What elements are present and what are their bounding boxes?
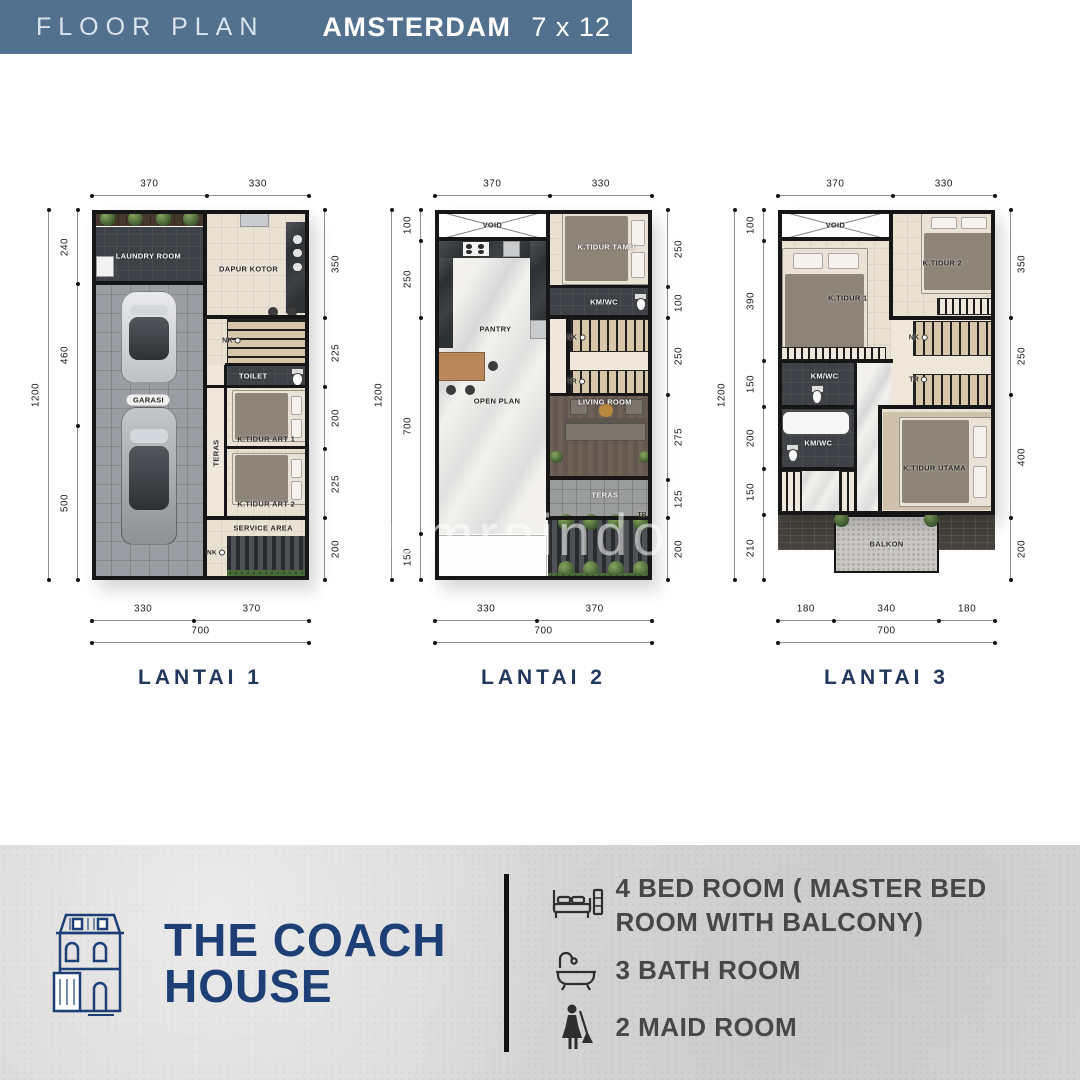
dimension-tick bbox=[419, 578, 423, 582]
dimension-tick bbox=[666, 208, 670, 212]
dimension-label: 700 bbox=[403, 417, 414, 435]
room-label-k-tidur-tamu: K.TIDUR TAMU bbox=[578, 243, 635, 252]
dimension-label: 350 bbox=[1017, 255, 1028, 273]
dimension-tick bbox=[76, 208, 80, 212]
dimension-tick bbox=[390, 578, 394, 582]
room-label-living-room: LIVING ROOM bbox=[578, 397, 632, 406]
footer-divider bbox=[504, 874, 509, 1052]
dimension-tick bbox=[832, 619, 836, 623]
dimension-tick bbox=[666, 316, 670, 320]
room-label-tr: TR bbox=[637, 511, 646, 518]
feature-maidrooms: 2 MAID ROOM bbox=[537, 1003, 1075, 1053]
maid-icon bbox=[537, 1003, 615, 1053]
dimension-label: 330 bbox=[935, 179, 953, 190]
dimension-tick bbox=[548, 194, 552, 198]
dimension-label: 100 bbox=[674, 293, 685, 311]
dimension-line bbox=[778, 195, 995, 196]
dimension-label: 250 bbox=[403, 270, 414, 288]
dimension-line bbox=[48, 210, 49, 580]
dimension-tick bbox=[937, 619, 941, 623]
dimension-tick bbox=[762, 467, 766, 471]
dimension-tick bbox=[650, 641, 654, 645]
dimension-tick bbox=[666, 516, 670, 520]
dimension-tick bbox=[762, 239, 766, 243]
brand-line-2: HOUSE bbox=[164, 963, 446, 1009]
features-list: 4 BED ROOM ( MASTER BED ROOM WITH BALCON… bbox=[537, 872, 1075, 1054]
floor-plan-title: FLOOR PLAN bbox=[36, 13, 264, 42]
room-label-km-wc: KM/WC bbox=[804, 439, 832, 448]
dimension-tick bbox=[76, 282, 80, 286]
dimension-label: 700 bbox=[191, 626, 209, 637]
dimension-label: 150 bbox=[746, 375, 757, 393]
feature-maidrooms-text: 2 MAID ROOM bbox=[615, 1011, 797, 1045]
room-label-teras: TERAS bbox=[212, 439, 221, 466]
dimension-label: 150 bbox=[746, 483, 757, 501]
dimension-label: 100 bbox=[746, 216, 757, 234]
dimension-label: 100 bbox=[403, 216, 414, 234]
dimension-label: 225 bbox=[331, 344, 342, 362]
dimension-tick bbox=[323, 385, 327, 389]
dimension-label: 1200 bbox=[374, 383, 385, 407]
stair-direction-marker bbox=[921, 377, 927, 383]
dimension-line bbox=[391, 210, 392, 580]
dimension-tick bbox=[76, 424, 80, 428]
dimension-label: 370 bbox=[243, 604, 261, 615]
room-label-nk: NK bbox=[567, 334, 586, 341]
dimension-tick bbox=[733, 578, 737, 582]
dimension-line bbox=[420, 210, 421, 580]
dimension-tick bbox=[1009, 578, 1013, 582]
feature-bedrooms-text: 4 BED ROOM ( MASTER BED ROOM WITH BALCON… bbox=[615, 872, 1075, 940]
room-label-balkon: BALKON bbox=[870, 539, 904, 548]
floor-plan-lantai-3: VOIDK.TIDUR 1K.TIDUR 2KM/WCNKTRKM/WCK.TI… bbox=[718, 180, 1035, 700]
room-label-k-tidur-utama: K.TIDUR UTAMA bbox=[903, 464, 966, 473]
dimension-line bbox=[435, 620, 652, 621]
dimension-line bbox=[435, 642, 652, 643]
room-label-void: VOID bbox=[826, 220, 846, 229]
dimension-tick bbox=[307, 619, 311, 623]
stair-direction-marker bbox=[579, 379, 585, 385]
dimension-tick bbox=[47, 578, 51, 582]
room-label-garasi: GARASI bbox=[127, 394, 170, 405]
room-label-k-tidur-1: K.TIDUR 1 bbox=[828, 293, 867, 302]
dimension-label: 210 bbox=[746, 539, 757, 557]
house-logo-icon bbox=[42, 907, 138, 1019]
bath-icon bbox=[537, 948, 615, 994]
room-label-teras: TERAS bbox=[591, 491, 618, 500]
dimension-label: 180 bbox=[797, 604, 815, 615]
stair-direction-marker bbox=[921, 335, 927, 341]
room-label-pantry: PANTRY bbox=[480, 324, 512, 333]
floor-label: LANTAI 2 bbox=[435, 666, 652, 690]
room-label-nk: NK bbox=[222, 338, 241, 345]
dimension-tick bbox=[419, 239, 423, 243]
room-label-dapur-kotor: DAPUR KOTOR bbox=[219, 265, 278, 274]
dimension-tick bbox=[307, 641, 311, 645]
dimension-tick bbox=[993, 641, 997, 645]
dimension-tick bbox=[733, 208, 737, 212]
dimension-label: 370 bbox=[586, 604, 604, 615]
feature-bedrooms: 4 BED ROOM ( MASTER BED ROOM WITH BALCON… bbox=[537, 872, 1075, 940]
dimension-label: 350 bbox=[331, 255, 342, 273]
dimension-tick bbox=[762, 578, 766, 582]
dimension-line bbox=[92, 195, 309, 196]
dimension-tick bbox=[323, 447, 327, 451]
room-label-laundry-room: LAUNDRY ROOM bbox=[116, 251, 181, 260]
model-title: AMSTERDAM 7 x 12 bbox=[322, 12, 611, 43]
dimension-tick bbox=[776, 641, 780, 645]
dimension-label: 370 bbox=[483, 179, 501, 190]
dimension-tick bbox=[323, 578, 327, 582]
dimension-label: 150 bbox=[403, 548, 414, 566]
dimension-tick bbox=[47, 208, 51, 212]
plan-canvas: LAUNDRY ROOMDAPUR KOTORNKTOILETTERASK.TI… bbox=[92, 210, 309, 580]
room-label-tr: TR bbox=[567, 379, 585, 386]
dimension-tick bbox=[192, 619, 196, 623]
dimension-tick bbox=[323, 316, 327, 320]
dimension-tick bbox=[650, 194, 654, 198]
dimension-line bbox=[77, 210, 78, 580]
bed-icon bbox=[537, 886, 615, 926]
dimension-tick bbox=[205, 194, 209, 198]
dimension-line bbox=[734, 210, 735, 580]
plan-canvas: VOIDPANTRYK.TIDUR TAMUKM/WCNKTROPEN PLAN… bbox=[435, 210, 652, 580]
dimension-tick bbox=[390, 208, 394, 212]
dimension-label: 400 bbox=[1017, 448, 1028, 466]
room-label-k-tidur-2: K.TIDUR 2 bbox=[923, 259, 962, 268]
dimension-label: 250 bbox=[674, 347, 685, 365]
dimension-line bbox=[435, 195, 652, 196]
dimension-tick bbox=[90, 194, 94, 198]
furniture-brick bbox=[939, 515, 995, 550]
dimension-label: 330 bbox=[592, 179, 610, 190]
dimension-label: 700 bbox=[534, 626, 552, 637]
dimension-tick bbox=[433, 641, 437, 645]
brand-name: THE COACH HOUSE bbox=[164, 917, 446, 1009]
dimension-label: 200 bbox=[1017, 540, 1028, 558]
dimension-label: 390 bbox=[746, 292, 757, 310]
footer: THE COACH HOUSE 4 BED ROOM ( MASTER BED … bbox=[0, 845, 1080, 1080]
dimension-tick bbox=[90, 641, 94, 645]
dimension-line bbox=[324, 210, 325, 580]
model-name: AMSTERDAM bbox=[322, 12, 511, 43]
dimension-label: 200 bbox=[331, 540, 342, 558]
dimension-tick bbox=[650, 619, 654, 623]
floor-plans-section: LAUNDRY ROOMDAPUR KOTORNKTOILETTERASK.TI… bbox=[32, 180, 1035, 700]
dimension-tick bbox=[993, 194, 997, 198]
dimension-tick bbox=[891, 194, 895, 198]
header-banner: FLOOR PLAN AMSTERDAM 7 x 12 bbox=[0, 0, 632, 54]
furniture-brick bbox=[778, 515, 834, 550]
dimension-label: 370 bbox=[140, 179, 158, 190]
dimension-line bbox=[763, 210, 764, 580]
dimension-label: 340 bbox=[877, 604, 895, 615]
dimension-tick bbox=[433, 194, 437, 198]
dimension-tick bbox=[76, 578, 80, 582]
dimension-tick bbox=[762, 405, 766, 409]
stair-direction-marker bbox=[219, 550, 225, 556]
dimension-tick bbox=[762, 359, 766, 363]
dimension-tick bbox=[419, 316, 423, 320]
dimension-tick bbox=[666, 478, 670, 482]
stair-direction-marker bbox=[235, 338, 241, 344]
dimension-tick bbox=[666, 578, 670, 582]
dimension-label: 250 bbox=[674, 239, 685, 257]
room-label-open-plan: OPEN PLAN bbox=[474, 397, 520, 406]
dimension-label: 330 bbox=[134, 604, 152, 615]
dimension-tick bbox=[307, 194, 311, 198]
dimension-label: 200 bbox=[331, 409, 342, 427]
dimension-tick bbox=[776, 619, 780, 623]
dimension-tick bbox=[666, 285, 670, 289]
stair-direction-marker bbox=[579, 335, 585, 341]
dimension-tick bbox=[666, 393, 670, 397]
dimension-tick bbox=[535, 619, 539, 623]
dimension-tick bbox=[762, 513, 766, 517]
dimension-label: 500 bbox=[60, 494, 71, 512]
room-label-nk: NK bbox=[207, 549, 225, 556]
dimension-tick bbox=[1009, 516, 1013, 520]
dimension-label: 700 bbox=[877, 626, 895, 637]
dimension-tick bbox=[90, 619, 94, 623]
dimension-tick bbox=[323, 516, 327, 520]
dimension-label: 225 bbox=[331, 475, 342, 493]
room-label-k-tidur-art-1: K.TIDUR ART 1 bbox=[237, 434, 295, 443]
dimension-label: 370 bbox=[826, 179, 844, 190]
dimension-line bbox=[92, 642, 309, 643]
dimension-label: 180 bbox=[958, 604, 976, 615]
dimension-tick bbox=[1009, 393, 1013, 397]
floor-plan-lantai-1: LAUNDRY ROOMDAPUR KOTORNKTOILETTERASK.TI… bbox=[32, 180, 349, 700]
dimension-label: 460 bbox=[60, 346, 71, 364]
room-label-tr: TR bbox=[909, 377, 927, 384]
room-label-toilet: TOILET bbox=[239, 371, 267, 380]
room-label-k-tidur-art-2: K.TIDUR ART 2 bbox=[237, 499, 295, 508]
room-label-nk: NK bbox=[909, 334, 928, 341]
dimension-tick bbox=[776, 194, 780, 198]
dimension-tick bbox=[323, 208, 327, 212]
dimension-line bbox=[92, 620, 309, 621]
brand-line-1: THE COACH bbox=[164, 917, 446, 963]
dimension-tick bbox=[1009, 316, 1013, 320]
room-label-service-area: SERVICE AREA bbox=[233, 523, 292, 532]
dimension-tick bbox=[762, 208, 766, 212]
dimension-label: 1200 bbox=[717, 383, 728, 407]
dimension-tick bbox=[1009, 208, 1013, 212]
feature-bathrooms: 3 BATH ROOM bbox=[537, 948, 1075, 994]
dimension-label: 125 bbox=[674, 490, 685, 508]
dimension-tick bbox=[993, 619, 997, 623]
dimension-label: 330 bbox=[477, 604, 495, 615]
dimension-label: 275 bbox=[674, 428, 685, 446]
plan-canvas: VOIDK.TIDUR 1K.TIDUR 2KM/WCNKTRKM/WCK.TI… bbox=[778, 210, 995, 580]
floor-label: LANTAI 1 bbox=[92, 666, 309, 690]
dimension-line bbox=[778, 620, 995, 621]
dimension-tick bbox=[419, 532, 423, 536]
feature-bathrooms-text: 3 BATH ROOM bbox=[615, 954, 801, 988]
dimension-label: 240 bbox=[60, 238, 71, 256]
outer-wall bbox=[435, 210, 652, 580]
dimension-label: 330 bbox=[249, 179, 267, 190]
room-label-km-wc: KM/WC bbox=[811, 371, 839, 380]
dimension-label: 200 bbox=[674, 540, 685, 558]
floor-label: LANTAI 3 bbox=[778, 666, 995, 690]
dimension-label: 250 bbox=[1017, 347, 1028, 365]
dimension-label: 1200 bbox=[31, 383, 42, 407]
dimension-label: 200 bbox=[746, 429, 757, 447]
dimension-tick bbox=[419, 208, 423, 212]
dimension-tick bbox=[433, 619, 437, 623]
floor-plan-lantai-2: VOIDPANTRYK.TIDUR TAMUKM/WCNKTROPEN PLAN… bbox=[375, 180, 692, 700]
room-label-km-wc: KM/WC bbox=[590, 297, 618, 306]
dimension-line bbox=[778, 642, 995, 643]
room-label-void: VOID bbox=[483, 220, 503, 229]
model-size: 7 x 12 bbox=[531, 12, 611, 43]
